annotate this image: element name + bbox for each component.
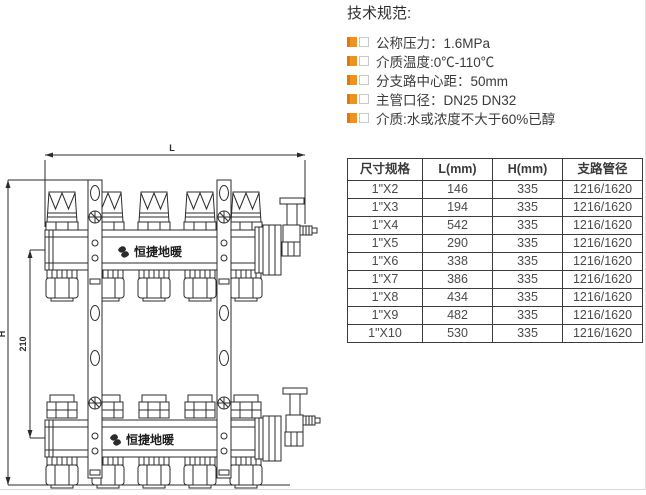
spec-item-text: 介质:水或浓度不大于60%已醇	[376, 108, 555, 128]
table-row: 1"X94823351216/1620	[348, 307, 643, 325]
spec-sheet-page: { "specs": { "title": "技术规范:", "items": …	[0, 0, 646, 490]
table-row: 1"X45423351216/1620	[348, 217, 643, 235]
pipe-fitting	[46, 457, 78, 488]
table-cell: 1216/1620	[563, 325, 643, 343]
size-table: 尺寸规格L(mm)H(mm)支路管径 1"X21463351216/16201"…	[347, 158, 643, 343]
table-cell: 1216/1620	[563, 253, 643, 271]
manifold-bottom-bar	[45, 388, 320, 488]
outline-square-bullet	[359, 75, 369, 85]
hex-valve-cap	[231, 395, 261, 418]
table-cell: 335	[493, 199, 563, 217]
dim-210-label: 210	[18, 336, 28, 351]
table-cell: 335	[493, 253, 563, 271]
mounting-bracket-left	[88, 180, 102, 478]
pipe-fitting	[138, 457, 170, 488]
table-cell: 1"X4	[348, 217, 423, 235]
valve-cap	[46, 192, 78, 230]
spec-title: 技术规范:	[347, 2, 643, 23]
table-cell: 1216/1620	[563, 307, 643, 325]
table-cell: 1216/1620	[563, 199, 643, 217]
valve-cap	[230, 192, 262, 230]
dim-H-label: H	[0, 331, 7, 338]
table-cell: 335	[493, 271, 563, 289]
table-cell: 530	[423, 325, 493, 343]
table-cell: 1216/1620	[563, 235, 643, 253]
size-table-header-row: 尺寸规格L(mm)H(mm)支路管径	[348, 159, 643, 181]
hex-valve-cap	[47, 395, 77, 418]
spec-item-text: 介质温度:0℃-110℃	[376, 51, 494, 71]
end-cap-bottom	[255, 416, 281, 461]
table-cell: 335	[493, 307, 563, 325]
table-cell: 1"X7	[348, 271, 423, 289]
table-cell: 386	[423, 271, 493, 289]
pipe-fitting	[184, 270, 216, 301]
pipe-fitting	[138, 270, 170, 301]
hex-valve-cap	[139, 395, 169, 418]
table-cell: 335	[493, 181, 563, 199]
table-cell: 482	[423, 307, 493, 325]
table-cell: 1"X9	[348, 307, 423, 325]
table-cell: 1216/1620	[563, 217, 643, 235]
dimension-210: 210	[18, 250, 45, 438]
pipe-fitting	[184, 457, 216, 488]
outline-square-bullet	[359, 113, 369, 123]
table-cell: 146	[423, 181, 493, 199]
table-cell: 290	[423, 235, 493, 253]
table-cell: 1216/1620	[563, 181, 643, 199]
brand-logo-text: 恒捷地暖	[126, 432, 175, 447]
table-cell: 542	[423, 217, 493, 235]
table-row: 1"X52903351216/1620	[348, 235, 643, 253]
table-row: 1"X63383351216/1620	[348, 253, 643, 271]
dimension-L: L	[45, 143, 305, 227]
vent-valve-bottom	[283, 388, 320, 446]
table-cell: 335	[493, 325, 563, 343]
orange-square-bullet	[347, 113, 357, 123]
table-cell: 1"X8	[348, 289, 423, 307]
spec-item: 公称压力：1.6MPa	[347, 33, 643, 51]
table-row: 1"X21463351216/1620	[348, 181, 643, 199]
outline-square-bullet	[359, 56, 369, 66]
table-cell: 335	[493, 235, 563, 253]
spec-item: 介质:水或浓度不大于60%已醇	[347, 109, 643, 127]
spec-item: 主管口径：DN25 DN32	[347, 90, 643, 108]
table-cell: 338	[423, 253, 493, 271]
pipe-fitting	[46, 270, 78, 301]
vent-valve-top	[280, 198, 317, 256]
orange-square-bullet	[347, 56, 357, 66]
manifold-drawing-svg: 恒捷地暖 恒捷地暖 L H 210	[0, 130, 340, 490]
manifold-drawing: 恒捷地暖 恒捷地暖 L H 210	[0, 130, 340, 490]
table-cell: 335	[493, 217, 563, 235]
table-header-cell: 支路管径	[563, 159, 643, 181]
spec-list: 公称压力：1.6MPa介质温度:0℃-110℃分支路中心距：50mm主管口径：D…	[347, 33, 643, 127]
orange-square-bullet	[347, 37, 357, 47]
spec-item: 介质温度:0℃-110℃	[347, 52, 643, 70]
table-header-cell: L(mm)	[423, 159, 493, 181]
right-column: 技术规范: 公称压力：1.6MPa介质温度:0℃-110℃分支路中心距：50mm…	[347, 0, 643, 128]
spec-item-text: 分支路中心距：50mm	[376, 70, 508, 90]
orange-square-bullet	[347, 75, 357, 85]
hex-valve-cap	[185, 395, 215, 418]
table-row: 1"X31943351216/1620	[348, 199, 643, 217]
size-table-body: 1"X21463351216/16201"X31943351216/16201"…	[348, 181, 643, 343]
table-row: 1"X73863351216/1620	[348, 271, 643, 289]
valve-cap	[138, 192, 170, 230]
table-cell: 1216/1620	[563, 289, 643, 307]
table-cell: 434	[423, 289, 493, 307]
table-header-cell: 尺寸规格	[348, 159, 423, 181]
table-header-cell: H(mm)	[493, 159, 563, 181]
table-cell: 1"X5	[348, 235, 423, 253]
spec-item-text: 主管口径：DN25 DN32	[376, 89, 516, 109]
orange-square-bullet	[347, 94, 357, 104]
table-row: 1"X84343351216/1620	[348, 289, 643, 307]
mounting-bracket-right	[217, 180, 231, 478]
table-cell: 335	[493, 289, 563, 307]
outline-square-bullet	[359, 37, 369, 47]
table-row: 1"X105303351216/1620	[348, 325, 643, 343]
brand-logo-text: 恒捷地暖	[134, 244, 183, 259]
outline-square-bullet	[359, 94, 369, 104]
table-cell: 1"X10	[348, 325, 423, 343]
table-cell: 1"X6	[348, 253, 423, 271]
spec-item: 分支路中心距：50mm	[347, 71, 643, 89]
table-cell: 1"X3	[348, 199, 423, 217]
spec-item-text: 公称压力：1.6MPa	[376, 32, 490, 52]
pipe-fitting	[230, 457, 262, 488]
table-cell: 1"X2	[348, 181, 423, 199]
table-cell: 1216/1620	[563, 271, 643, 289]
pipe-fitting	[230, 270, 262, 301]
table-cell: 194	[423, 199, 493, 217]
valve-cap	[184, 192, 216, 230]
dim-L-label: L	[169, 143, 175, 153]
end-cap-top	[255, 225, 281, 275]
